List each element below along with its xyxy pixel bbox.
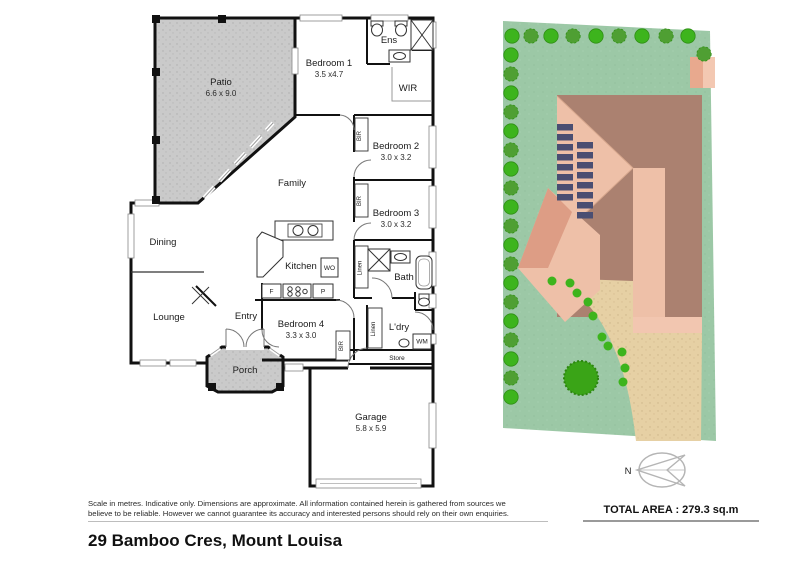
tree-icon: [504, 333, 518, 347]
shrub-icon: [621, 364, 630, 373]
fridge-label: F: [270, 289, 274, 296]
tree-icon: [635, 29, 649, 43]
tree-icon: [544, 29, 558, 43]
tree-icon: [504, 162, 518, 176]
room-label-store: Store: [389, 355, 405, 362]
tree-icon: [524, 29, 538, 43]
tree-icon: [504, 200, 518, 214]
total-area-label: TOTAL AREA : 279.3 sq.m: [583, 504, 759, 516]
tree-icon: [504, 371, 518, 385]
bir-label-bed3: BIR: [357, 195, 363, 206]
tree-icon: [504, 390, 518, 404]
shrub-icon: [589, 312, 598, 321]
room-label-porch: Porch: [233, 365, 258, 376]
tree-icon: [504, 181, 518, 195]
garden-shed: [690, 57, 715, 88]
floorplan-page: N: [0, 0, 800, 566]
tree-icon: [697, 47, 711, 61]
room-label-bedroom4: Bedroom 4: [278, 319, 324, 330]
room-label-ldry: L'dry: [389, 322, 410, 333]
tree-icon: [504, 314, 518, 328]
linen-label-bath: Linen: [358, 261, 364, 276]
room-label-patio: Patio: [210, 77, 232, 88]
room-label-lounge: Lounge: [153, 312, 185, 323]
shrub-icon: [573, 289, 582, 298]
room-label-bedroom1: Bedroom 1: [306, 58, 352, 69]
shrub-icon: [548, 277, 557, 286]
room-dims-bedroom4: 3.3 x 3.0: [286, 331, 317, 340]
room-label-bedroom3: Bedroom 3: [373, 208, 419, 219]
disclaimer-divider: [88, 521, 548, 522]
floor-plan: Patio 6.6 x 9.0 Bedroom 1 3.5 x4.7 Ens W…: [128, 15, 436, 488]
site-plan: [503, 21, 716, 441]
room-dims-bedroom3: 3.0 x 3.2: [381, 220, 412, 229]
tree-icon: [504, 124, 518, 138]
disclaimer-line2: believe to be reliable. However we canno…: [88, 509, 552, 519]
shrub-icon: [584, 298, 593, 307]
room-label-bedroom2: Bedroom 2: [373, 141, 419, 152]
room-label-bath: Bath: [394, 272, 414, 283]
large-bush: [564, 361, 598, 395]
tree-icon: [504, 295, 518, 309]
tree-icon: [659, 29, 673, 43]
bir-label-bed2: BIR: [357, 130, 363, 141]
tree-icon: [504, 105, 518, 119]
tree-icon: [589, 29, 603, 43]
plan-canvas: N: [0, 0, 800, 566]
tree-icon: [504, 86, 518, 100]
tree-icon: [504, 219, 518, 233]
shrub-icon: [619, 378, 628, 387]
tree-icon: [504, 238, 518, 252]
tree-icon: [504, 352, 518, 366]
kitchen-fixtures: [257, 221, 338, 298]
room-dims-bedroom1: 3.5 x4.7: [315, 70, 344, 79]
room-label-family: Family: [278, 178, 306, 189]
pantry-label: P: [321, 289, 325, 296]
room-label-kitchen: Kitchen: [285, 261, 317, 272]
washing-machine-label: WM: [416, 339, 428, 346]
shrub-icon: [566, 279, 575, 288]
room-dims-bedroom2: 3.0 x 3.2: [381, 153, 412, 162]
shrub-icon: [598, 333, 607, 342]
total-area-underline: [583, 520, 759, 522]
bir-label-bed4: BIR: [339, 340, 345, 351]
linen-label-ldry: Linen: [371, 322, 377, 337]
shrub-icon: [604, 342, 613, 351]
tree-icon: [681, 29, 695, 43]
tree-icon: [504, 257, 518, 271]
tree-icon: [504, 48, 518, 62]
room-dims-patio: 6.6 x 9.0: [206, 89, 237, 98]
room-label-wir: WIR: [399, 83, 418, 94]
tree-icon: [505, 29, 519, 43]
tree-icon: [504, 143, 518, 157]
room-label-dining: Dining: [150, 237, 177, 248]
room-label-ens: Ens: [381, 35, 398, 46]
address-title: 29 Bamboo Cres, Mount Louisa: [88, 531, 342, 551]
shrub-icon: [618, 348, 627, 357]
room-label-garage: Garage: [355, 412, 387, 423]
room-label-entry: Entry: [235, 311, 257, 322]
disclaimer-text: Scale in metres. Indicative only. Dimens…: [88, 499, 552, 518]
compass: N: [625, 453, 685, 487]
tree-icon: [612, 29, 626, 43]
compass-north-label: N: [625, 466, 632, 477]
wall-oven-label: WO: [324, 265, 335, 272]
tree-icon: [504, 67, 518, 81]
disclaimer-line1: Scale in metres. Indicative only. Dimens…: [88, 499, 552, 509]
room-dims-garage: 5.8 x 5.9: [356, 424, 387, 433]
tree-icon: [566, 29, 580, 43]
tree-icon: [504, 276, 518, 290]
